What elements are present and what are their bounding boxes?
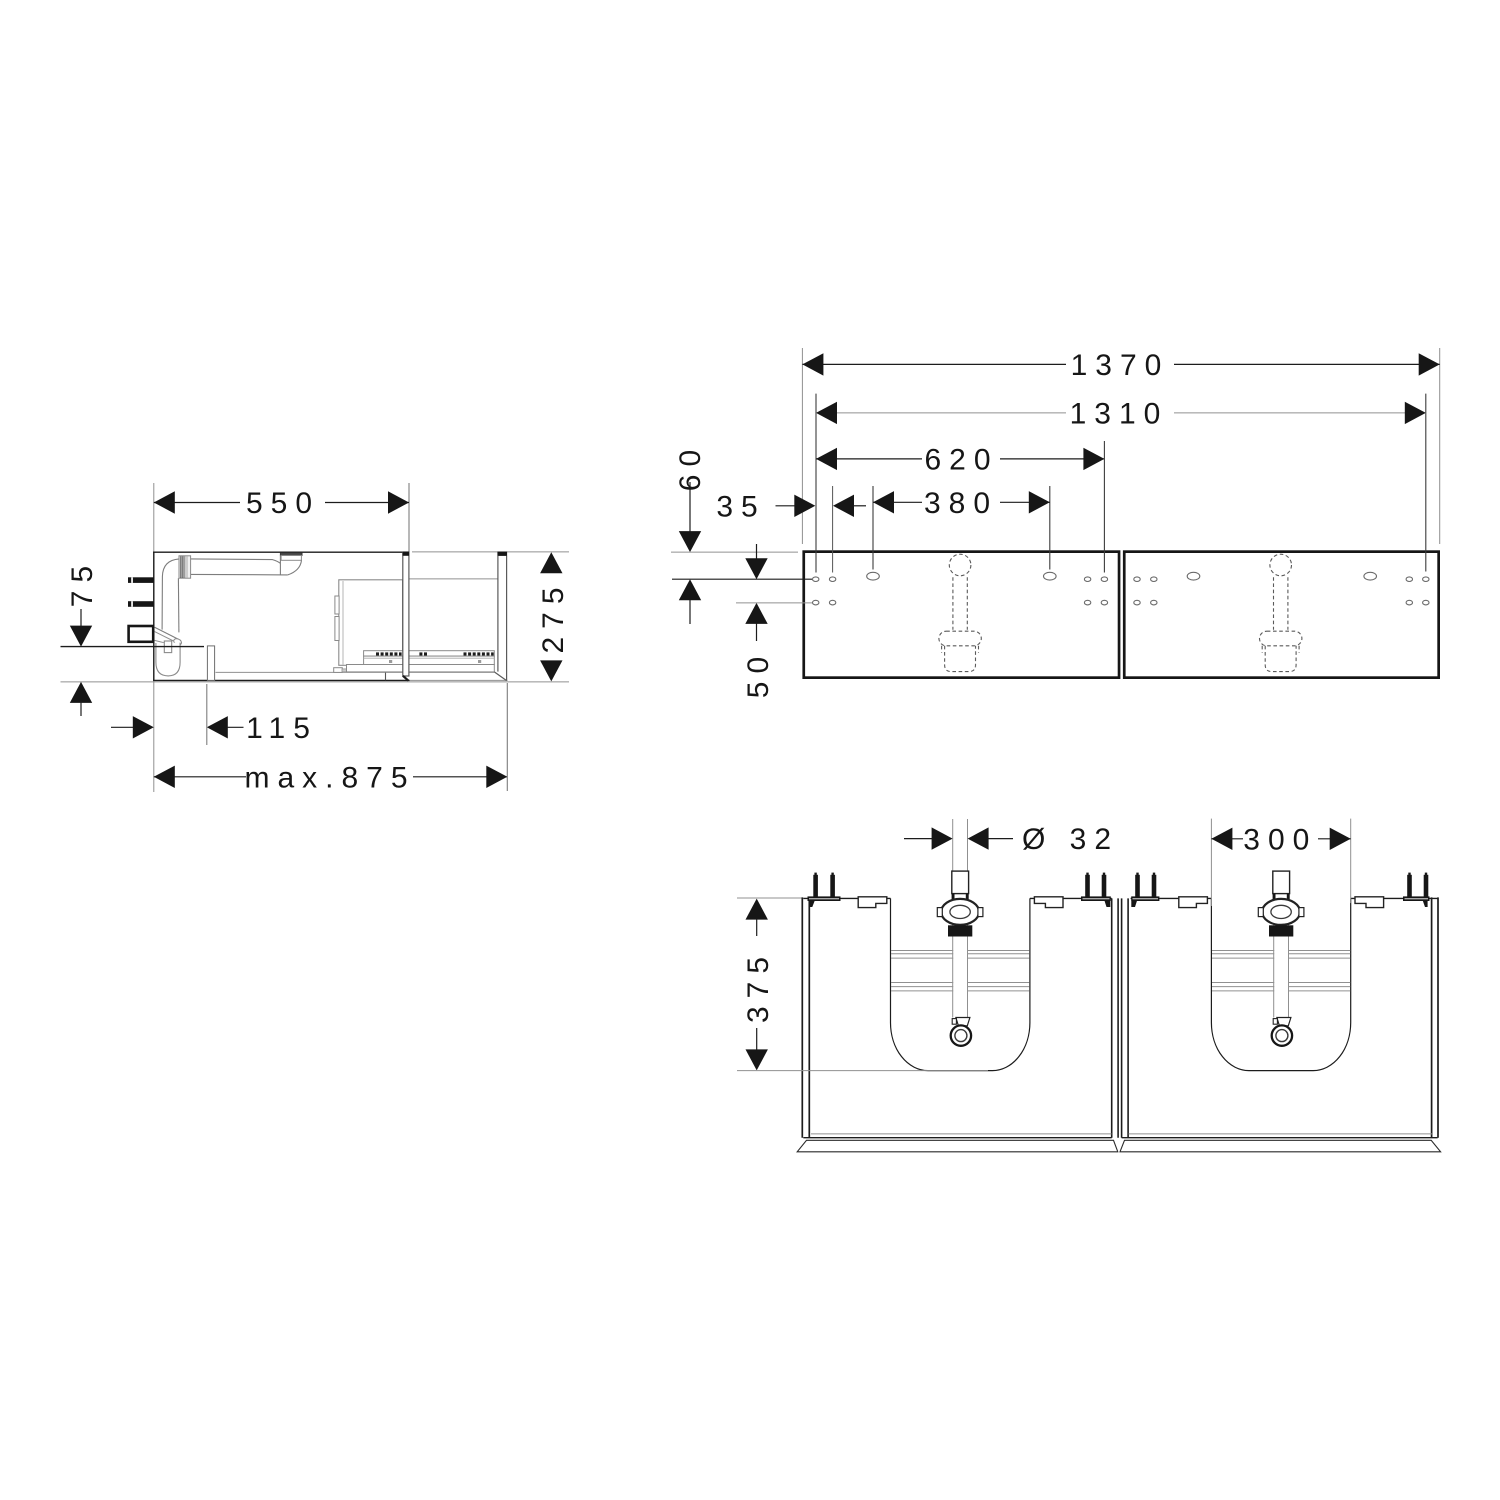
svg-text:max.875: max.875 — [244, 762, 415, 795]
svg-text:300: 300 — [1243, 823, 1317, 856]
svg-text:275: 275 — [537, 579, 570, 653]
svg-text:35: 35 — [716, 491, 765, 524]
svg-text:380: 380 — [924, 487, 998, 520]
svg-text:Ø 32: Ø 32 — [1022, 823, 1119, 856]
svg-text:550: 550 — [246, 487, 320, 520]
svg-text:1370: 1370 — [1071, 349, 1170, 382]
svg-text:620: 620 — [924, 444, 998, 477]
svg-text:60: 60 — [674, 442, 707, 491]
svg-text:50: 50 — [742, 649, 775, 698]
svg-text:115: 115 — [246, 712, 318, 745]
svg-text:1310: 1310 — [1070, 398, 1169, 431]
svg-text:375: 375 — [742, 949, 775, 1023]
svg-text:75: 75 — [66, 558, 99, 607]
